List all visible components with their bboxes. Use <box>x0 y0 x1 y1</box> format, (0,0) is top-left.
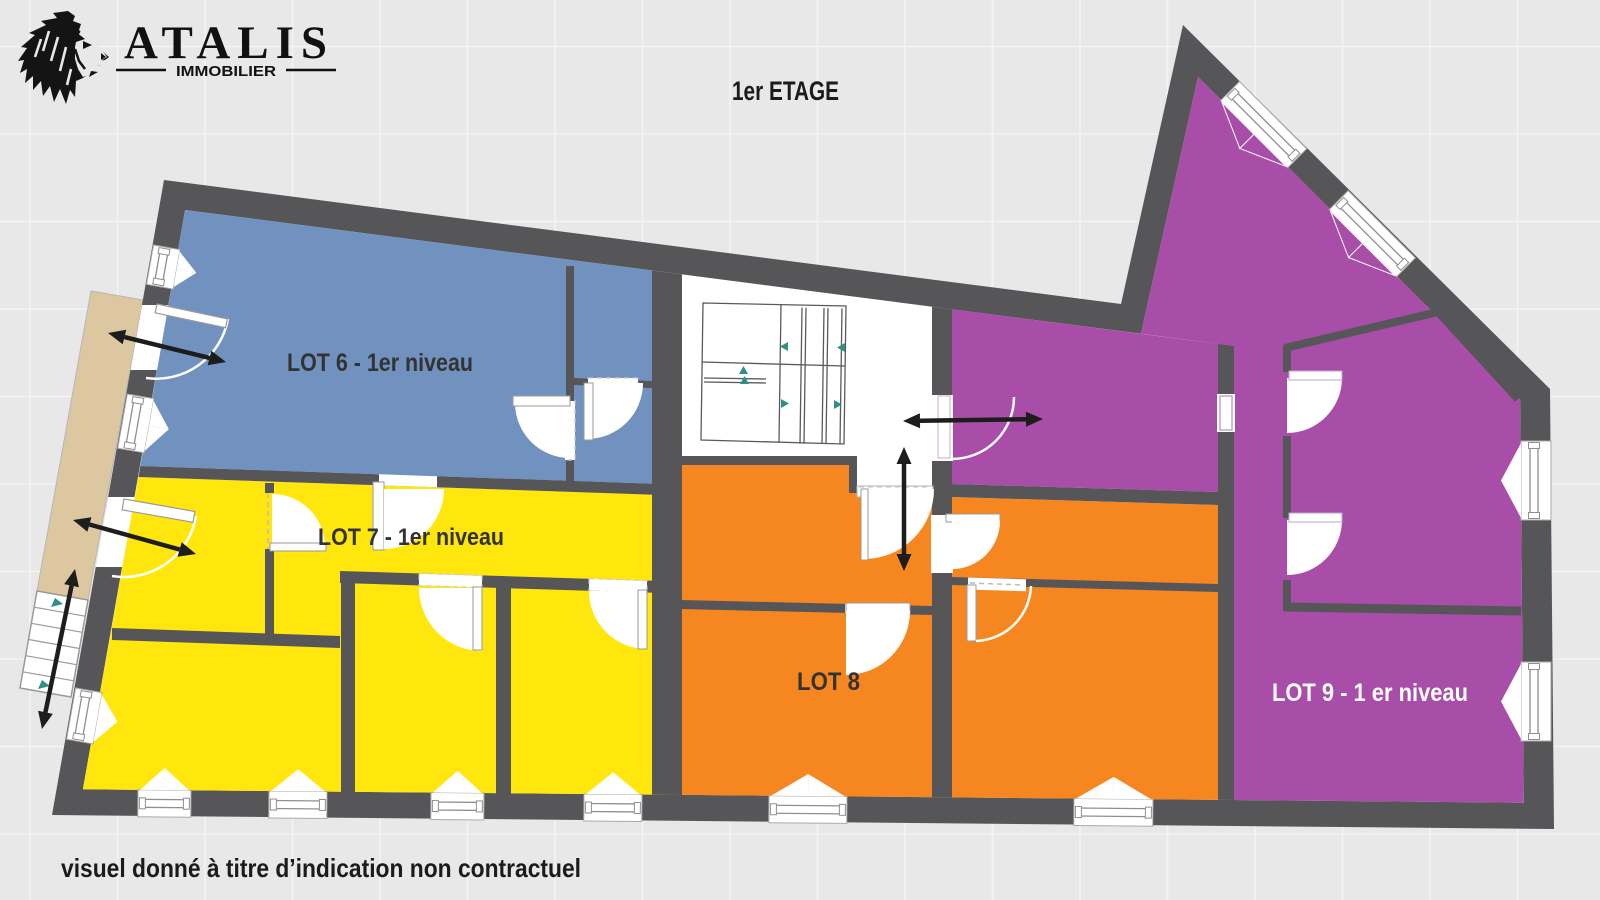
svg-text:LOT 8: LOT 8 <box>797 668 860 696</box>
svg-text:ATALIS: ATALIS <box>124 17 334 69</box>
svg-text:1er ETAGE: 1er ETAGE <box>732 76 839 106</box>
svg-text:visuel donné à titre d’indicat: visuel donné à titre d’indication non co… <box>61 853 581 883</box>
svg-text:LOT 9 - 1 er niveau: LOT 9 - 1 er niveau <box>1272 679 1468 707</box>
svg-text:IMMOBILIER: IMMOBILIER <box>176 63 276 80</box>
svg-text:LOT 6 - 1er niveau: LOT 6 - 1er niveau <box>287 349 473 377</box>
svg-text:LOT 7 - 1er niveau: LOT 7 - 1er niveau <box>318 524 504 551</box>
